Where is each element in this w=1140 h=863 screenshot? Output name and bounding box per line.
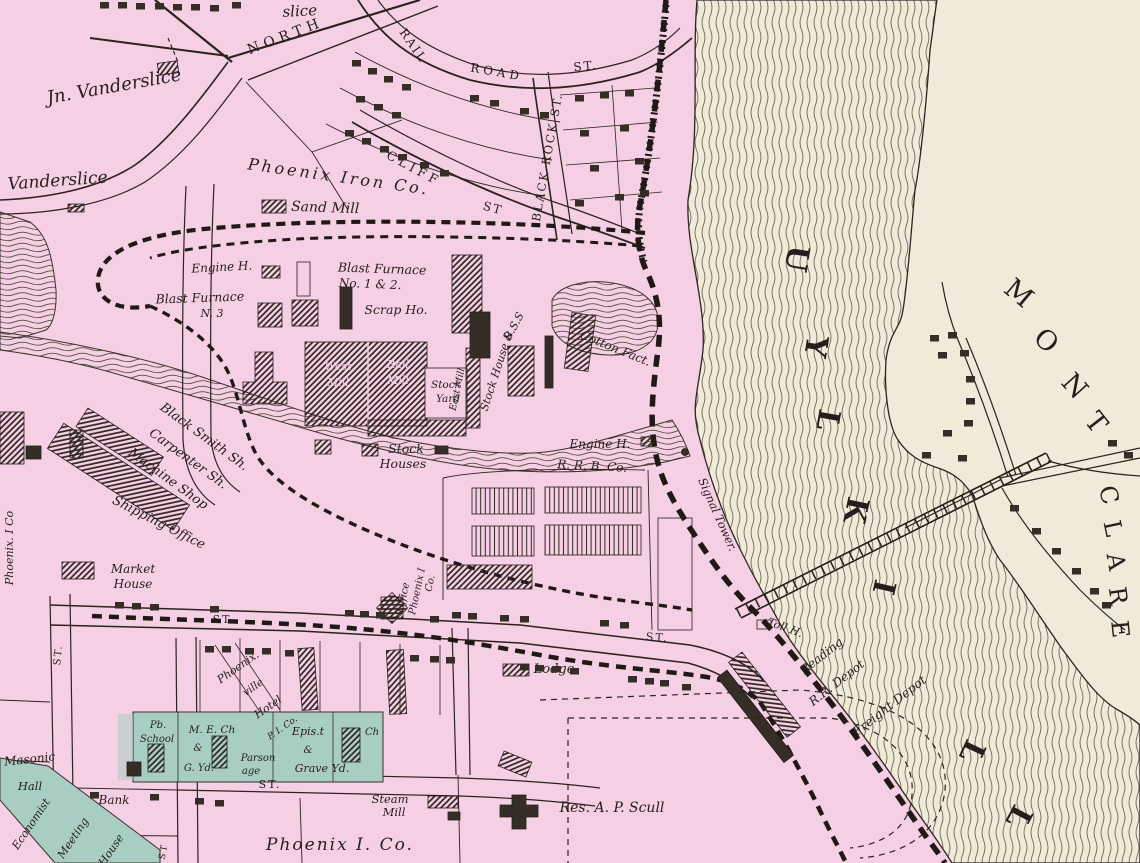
engine-house-building (262, 266, 280, 278)
school-building (148, 744, 164, 772)
building (580, 130, 589, 137)
label-g-yd: G. Yd. (184, 763, 214, 774)
label-steam-mill-2: Mill (382, 805, 406, 819)
building (100, 2, 109, 9)
building (173, 4, 182, 11)
building (468, 613, 477, 620)
label-market-house-1: Market (110, 562, 156, 576)
building (575, 95, 584, 102)
building (1102, 602, 1111, 609)
label-rail-mill-2: Mill (386, 374, 409, 387)
signal-tower-dot (682, 449, 689, 456)
building (118, 2, 127, 9)
label-railroad-st: ST. (573, 58, 599, 74)
building (374, 104, 383, 111)
label-blast-3-no: N. 3 (200, 307, 224, 320)
building (545, 336, 553, 388)
river-letter: U (777, 243, 816, 274)
building (938, 352, 947, 359)
building (195, 798, 204, 805)
sand-mill-building (262, 200, 286, 213)
building (660, 680, 669, 687)
label-parsonage-1: Parson (240, 753, 276, 764)
label-grave-yd: Grave Yd. (295, 762, 350, 775)
building (356, 96, 365, 103)
building (620, 622, 629, 629)
building (392, 112, 401, 119)
building (575, 200, 584, 207)
episcopal-church-building (342, 728, 360, 762)
engine-house-2 (641, 437, 654, 446)
row-housing (545, 487, 641, 513)
building (68, 204, 84, 212)
building (440, 170, 449, 177)
label-phoenix-i-co-south: Phoenix I. Co. (265, 835, 414, 855)
building (70, 430, 83, 458)
label-school-1: Pb. (149, 720, 166, 731)
building (682, 684, 691, 691)
building (26, 446, 41, 459)
building (232, 2, 241, 9)
label-blast-12: Blast Furnace (337, 259, 427, 277)
building (966, 376, 975, 383)
building (628, 676, 637, 683)
label-phoenix-i-co-west: Phoenix. I Co (3, 510, 16, 586)
building (360, 611, 369, 618)
building (368, 68, 377, 75)
building (420, 162, 429, 169)
building (448, 812, 460, 820)
label-hall: Hall (17, 779, 43, 793)
label-blast-3: Blast Furnace (154, 288, 244, 306)
building (402, 84, 411, 91)
building (262, 648, 271, 655)
building (600, 92, 609, 99)
building (452, 612, 461, 619)
stock-house-building (470, 312, 490, 358)
building (620, 125, 629, 132)
building (430, 656, 439, 663)
atlas-map: slice Jn. Vanderslice Vanderslice NORTH … (0, 0, 1140, 863)
building (410, 655, 419, 662)
label-st-2: ST. (645, 630, 669, 645)
building (966, 398, 975, 405)
label-epis-amp: & (304, 745, 313, 756)
building (215, 800, 224, 807)
building (155, 3, 164, 10)
building (205, 646, 214, 653)
building (1010, 505, 1019, 512)
building (520, 664, 529, 671)
stock-house (315, 440, 331, 454)
building (645, 678, 654, 685)
stock-house (435, 446, 448, 454)
building (380, 146, 389, 153)
building (600, 620, 609, 627)
label-school-2: School (140, 734, 174, 745)
map-page: slice Jn. Vanderslice Vanderslice NORTH … (0, 0, 1140, 863)
building (132, 603, 141, 610)
label-res-scull: Res. A. P. Scull (559, 800, 665, 816)
building (210, 5, 219, 12)
me-church-building (212, 736, 227, 768)
building (1108, 440, 1117, 447)
building (635, 158, 644, 165)
label-bank: Bank (98, 793, 130, 807)
building (345, 610, 354, 617)
blast-furnace-building (258, 303, 282, 327)
building (960, 350, 969, 357)
label-me-ch-amp: & (194, 743, 203, 754)
building (535, 665, 544, 672)
building (500, 615, 509, 622)
building (376, 612, 385, 619)
building (362, 138, 371, 145)
building (0, 412, 24, 464)
label-me-ch: M. E. Ch (188, 724, 236, 736)
building (625, 90, 634, 97)
label-west-mill-2: Mill (326, 376, 349, 389)
mill-extension (368, 420, 466, 436)
building (222, 646, 231, 653)
label-st-3: ST. (259, 778, 282, 791)
blast-furnace-building (292, 300, 318, 326)
building (948, 332, 957, 339)
works-building (447, 565, 532, 589)
label-parsonage-2: age (242, 766, 260, 777)
building (430, 616, 439, 623)
row-housing (472, 526, 534, 556)
furnace-building (340, 287, 352, 329)
building (210, 606, 219, 613)
label-blast-12-no: No. 1 & 2. (338, 276, 402, 292)
label-stock-houses-1: Stock (388, 441, 424, 456)
building (964, 420, 973, 427)
building (150, 604, 159, 611)
building (470, 95, 479, 102)
building (520, 616, 529, 623)
hotel-building (386, 650, 406, 715)
building (640, 190, 649, 197)
building (1032, 528, 1041, 535)
stock-house (362, 444, 378, 456)
building (136, 3, 145, 10)
market-house-building (62, 562, 94, 579)
building (446, 657, 455, 664)
building (285, 650, 294, 657)
steam-mill-building (428, 796, 458, 808)
building (590, 165, 599, 172)
building (930, 335, 939, 342)
stock-house-building (508, 346, 534, 396)
label-epis: Epis.t (291, 725, 325, 738)
row-housing (472, 488, 534, 514)
building (1072, 568, 1081, 575)
building (398, 154, 407, 161)
building (90, 792, 99, 799)
label-scrap-ho: Scrap Ho. (364, 302, 427, 317)
building (1090, 588, 1099, 595)
label-west-mill-1: West (325, 360, 353, 373)
building (490, 100, 499, 107)
building (1124, 452, 1133, 459)
building (615, 194, 624, 201)
building (570, 668, 579, 675)
clare-letter: E (1105, 619, 1135, 639)
label-rail-mill-1: Rail (386, 358, 410, 371)
building (352, 60, 361, 67)
building (1052, 548, 1061, 555)
masonic-hall-building (127, 762, 141, 776)
building (245, 648, 254, 655)
building (191, 4, 200, 11)
building (943, 430, 952, 437)
label-st-1: ST. (213, 613, 236, 626)
label-steam-mill-1: Steam (371, 792, 408, 806)
label-stock-houses-2: Houses (379, 456, 427, 471)
building (922, 452, 931, 459)
building (345, 130, 354, 137)
east-mill-building (466, 348, 480, 428)
building (115, 602, 124, 609)
building (150, 794, 159, 801)
building (958, 455, 967, 462)
label-market-house-2: House (113, 577, 153, 591)
building (552, 666, 561, 673)
label-epis-ch: Ch (365, 727, 379, 738)
furnace-stack (297, 262, 310, 296)
building (384, 76, 393, 83)
row-housing (545, 525, 641, 555)
building (520, 108, 529, 115)
label-st-4: ST. (52, 644, 65, 666)
label-engine-h-2: Engine H. (569, 437, 631, 451)
building (540, 112, 549, 119)
label-sand-mill: Sand Mill (291, 199, 360, 217)
